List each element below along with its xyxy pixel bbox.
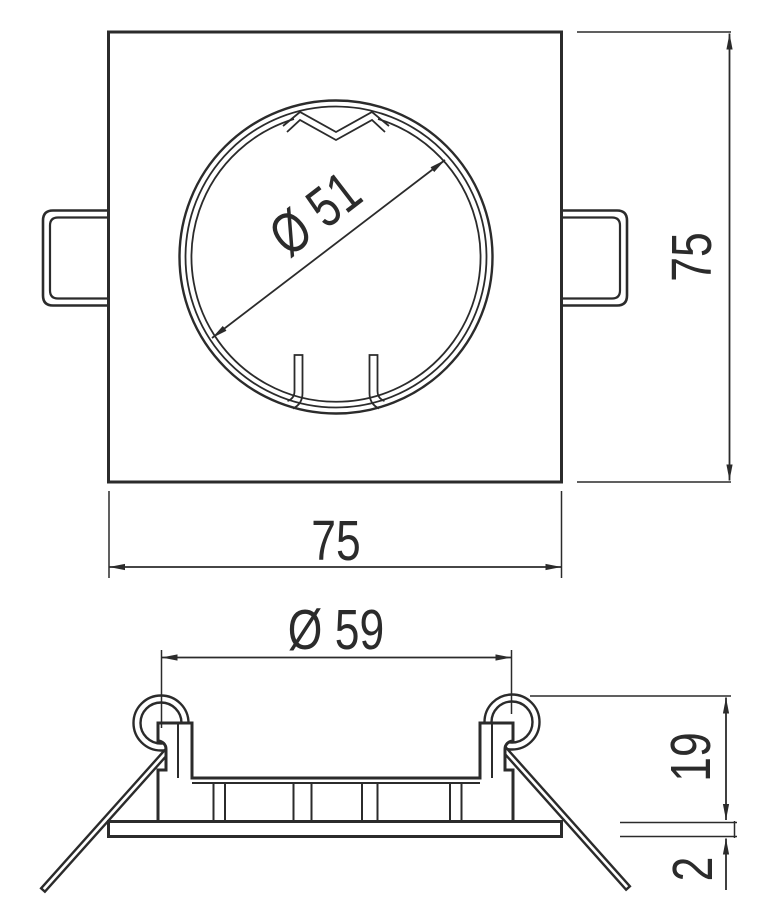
label-width-75: 75 bbox=[311, 509, 360, 573]
technical-drawing-page: Ø 51 75 75 bbox=[0, 0, 762, 919]
body-profile bbox=[158, 723, 513, 822]
top-view: Ø 51 75 75 bbox=[43, 32, 731, 578]
dim-height-19: 19 bbox=[530, 696, 731, 820]
spring-clip-left bbox=[41, 746, 172, 891]
label-height-19: 19 bbox=[659, 732, 723, 781]
dim-diameter-59: Ø 59 bbox=[162, 598, 512, 728]
dim-thickness-2: 2 bbox=[620, 821, 737, 890]
left-tab bbox=[43, 211, 110, 306]
downlight-dimension-drawing: Ø 51 75 75 bbox=[0, 0, 762, 919]
spring-clip-right bbox=[501, 746, 630, 889]
label-height-75: 75 bbox=[660, 232, 724, 281]
label-diameter-59: Ø 59 bbox=[288, 598, 384, 662]
flange bbox=[109, 822, 562, 837]
body-inner-lines bbox=[178, 724, 492, 783]
dim-width-75: 75 bbox=[109, 491, 562, 578]
label-thickness-2: 2 bbox=[661, 857, 725, 882]
right-tab bbox=[560, 211, 627, 306]
dim-height-75: 75 bbox=[577, 32, 731, 482]
section-view: Ø 59 19 2 bbox=[41, 598, 737, 892]
